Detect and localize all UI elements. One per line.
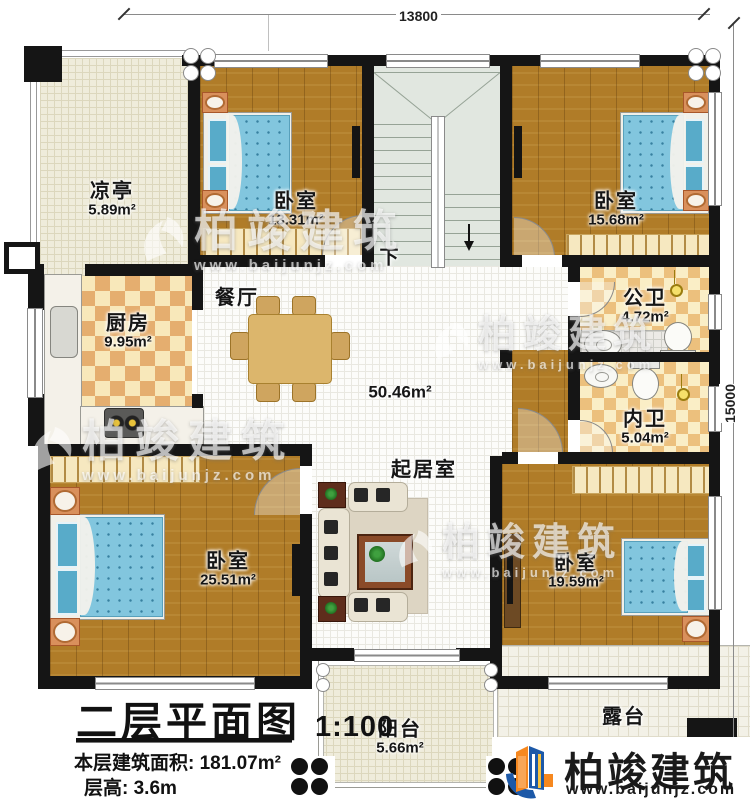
sliding-door	[354, 649, 460, 662]
room-name: 厨房	[104, 312, 152, 334]
room-area: 50.46m²	[368, 382, 431, 401]
wall-segment	[500, 350, 512, 368]
room-name: 卧室	[268, 190, 324, 212]
tv	[507, 556, 513, 604]
dining-chair	[330, 332, 350, 360]
room-label-bedroom-bottom-left: 卧室 25.51m²	[200, 550, 256, 589]
tv	[292, 544, 300, 596]
pendant-lamp-icon	[670, 284, 683, 297]
nightstand	[202, 92, 228, 113]
kitchen-sink	[50, 306, 78, 358]
pendant-cord	[681, 374, 682, 388]
column-post	[705, 65, 721, 81]
plant	[325, 602, 337, 614]
column-post	[688, 65, 704, 81]
company-logo-icon	[498, 740, 558, 802]
room-area: 5.89m²	[88, 203, 136, 220]
bathroom-sink	[584, 364, 618, 388]
pavilion-railing-inner	[36, 56, 189, 277]
dining-chair	[292, 296, 316, 316]
dimension-tick	[728, 17, 741, 30]
nightstand	[683, 190, 709, 211]
dining-chair	[292, 382, 316, 402]
cushion	[324, 520, 338, 534]
room-name: 公卫	[621, 287, 669, 309]
pillow	[686, 578, 706, 612]
wall-segment	[188, 55, 200, 267]
column-post	[183, 65, 199, 81]
stair-line	[374, 72, 500, 73]
stove	[104, 408, 144, 438]
stair-diagonal	[437, 72, 501, 124]
room-name: 卧室	[588, 190, 644, 212]
door-opening	[300, 466, 312, 514]
room-label-bedroom-bottom-right: 卧室 19.59m²	[548, 552, 604, 591]
room-name: 凉亭	[88, 180, 136, 202]
window	[214, 54, 328, 68]
dimension-extension	[268, 15, 269, 51]
stair-diagonal	[373, 72, 437, 124]
balcony-post	[316, 663, 330, 677]
room-label-dining: 餐厅	[215, 287, 259, 309]
plan-scale: 1:100	[315, 711, 394, 743]
nightstand	[202, 190, 228, 211]
balcony-post	[484, 663, 498, 677]
wall-segment	[28, 394, 44, 446]
stair-center-rail	[431, 116, 445, 268]
plant	[325, 488, 337, 500]
bed	[621, 538, 711, 616]
balcony-post	[484, 678, 498, 692]
room-name: 餐厅	[215, 287, 259, 309]
wall-segment	[312, 648, 354, 661]
door-opening	[325, 255, 362, 267]
floor-area-line: 本层建筑面积: 181.07m²	[74, 748, 281, 775]
pillow	[56, 522, 79, 568]
room-label-bedroom-top-left: 卧室 13.31m²	[268, 190, 324, 229]
cushion	[354, 488, 368, 502]
dimension-right-value: 15000	[719, 384, 741, 423]
bed	[50, 514, 165, 620]
down-text: 下	[379, 247, 400, 268]
column-post	[200, 48, 216, 64]
room-name: 起居室	[391, 459, 457, 481]
door-opening	[522, 255, 562, 267]
pillow	[683, 119, 704, 163]
pillow	[686, 544, 706, 578]
nightstand	[682, 616, 710, 642]
title-underline	[76, 738, 292, 743]
room-label-bedroom-top-right: 卧室 15.68m²	[588, 190, 644, 229]
room-name: 卧室	[548, 552, 604, 574]
floor-height-line: 层高: 3.6m	[84, 773, 177, 800]
wall-segment	[500, 55, 512, 267]
kitchen-counter-left	[44, 274, 82, 448]
cushion	[324, 572, 338, 586]
stair-treads-right	[443, 194, 500, 266]
window	[708, 92, 722, 206]
cushion	[324, 546, 338, 560]
plant	[369, 546, 385, 562]
stair-treads-left	[374, 124, 431, 266]
door-opening	[568, 420, 580, 452]
room-area: 13.31m²	[268, 213, 324, 230]
stair-arrow-head	[464, 241, 474, 251]
wall-segment	[362, 55, 374, 267]
dining-chair	[230, 332, 250, 360]
nightstand	[683, 92, 709, 113]
room-label-pavilion: 凉亭 5.89m²	[88, 180, 136, 219]
room-name: 内卫	[621, 408, 669, 430]
pendant-cord	[674, 270, 675, 284]
floor-plan-canvas: 凉亭 5.89m² 卧室 13.31m² 卧室 15.68m² 厨房 9.95m…	[0, 0, 750, 811]
column-dot	[291, 758, 308, 775]
bed-sheet	[674, 541, 688, 611]
tv	[352, 126, 360, 178]
company-logo-url: www.baijunjz.com	[566, 781, 736, 799]
wall-segment	[192, 394, 203, 408]
pendant-lamp-icon	[677, 388, 690, 401]
room-area: 19.59m²	[548, 575, 604, 592]
column-dot	[291, 778, 308, 795]
column-dot	[311, 758, 328, 775]
nightstand	[50, 487, 80, 515]
toilet-bowl	[632, 368, 659, 400]
window	[386, 54, 490, 68]
dining-chair	[256, 382, 280, 402]
wall-segment	[38, 444, 50, 689]
coffee-table	[357, 534, 413, 590]
wall-segment	[578, 352, 720, 362]
room-label-terrace: 露台	[602, 706, 646, 728]
nightstand	[50, 618, 80, 646]
window	[540, 54, 640, 68]
column-post	[705, 48, 721, 64]
wall-segment	[85, 264, 197, 276]
tv	[514, 126, 522, 178]
pavilion-corner-column	[24, 46, 62, 82]
column-post	[200, 65, 216, 81]
room-label-public-bath: 公卫 4.72m²	[621, 287, 669, 326]
cushion	[354, 598, 368, 612]
room-name: 卧室	[200, 550, 256, 572]
room-name: 露台	[602, 706, 646, 728]
window	[708, 496, 722, 610]
room-area: 15.68m²	[588, 213, 644, 230]
staircase	[374, 66, 500, 266]
column-post	[688, 48, 704, 64]
dining-table	[248, 314, 332, 384]
column-symbol	[289, 756, 335, 796]
window	[27, 308, 43, 398]
wall-segment	[456, 648, 502, 661]
room-label-kitchen: 厨房 9.95m²	[104, 312, 152, 351]
room-area: 4.72m²	[621, 310, 669, 327]
wardrobe	[50, 456, 200, 483]
wall-segment	[192, 264, 203, 310]
room-area: 25.51m²	[200, 573, 256, 590]
door-opening	[518, 452, 558, 464]
door-opening	[568, 282, 580, 316]
dimension-top-value: 13800	[396, 8, 441, 24]
room-label-inner-bath: 内卫 5.04m²	[621, 408, 669, 447]
cushion	[376, 488, 390, 502]
window	[708, 294, 722, 330]
stairs-down-label: 下	[379, 247, 400, 268]
room-label-living: 起居室	[391, 459, 457, 481]
column-post	[183, 48, 199, 64]
pillow	[56, 569, 79, 615]
dining-chair	[256, 296, 280, 316]
window	[548, 677, 668, 690]
wardrobe	[572, 466, 710, 494]
room-area: 9.95m²	[104, 335, 152, 352]
cushion	[376, 598, 390, 612]
living-area-label: 50.46m²	[368, 382, 431, 401]
column-dot	[311, 778, 328, 795]
room-area: 5.04m²	[621, 431, 669, 448]
pavilion-pier	[4, 242, 40, 274]
wall-segment	[38, 444, 312, 456]
stair-direction-arrow	[468, 224, 470, 242]
